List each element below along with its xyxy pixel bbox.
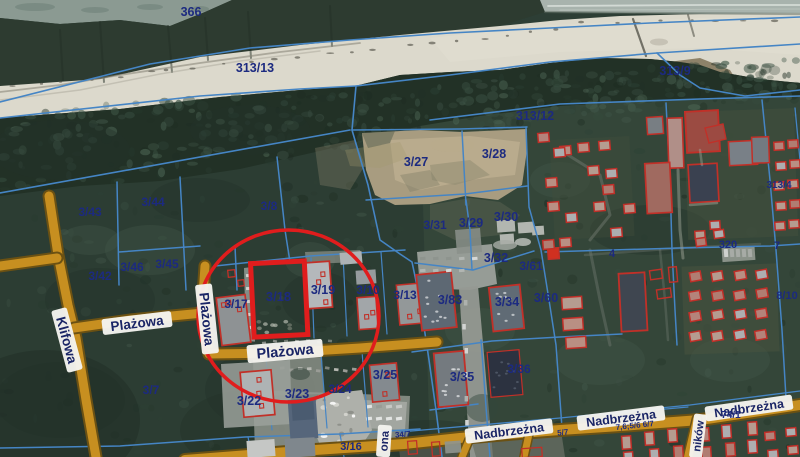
svg-text:3/22: 3/22 [237,394,261,408]
svg-text:3/43: 3/43 [78,205,102,219]
svg-text:3/25: 3/25 [373,368,397,382]
svg-text:313/9: 313/9 [659,64,690,78]
svg-text:3/46: 3/46 [120,260,144,274]
svg-text:3/35: 3/35 [450,370,474,384]
svg-text:3/24: 3/24 [328,382,352,396]
svg-text:313/12: 313/12 [516,109,554,123]
svg-text:313/13: 313/13 [236,61,274,75]
svg-text:3/44: 3/44 [141,195,165,209]
svg-text:3/13: 3/13 [393,288,417,302]
svg-text:3/29: 3/29 [459,216,483,230]
svg-text:320: 320 [719,239,737,251]
svg-text:5/7: 5/7 [557,427,570,437]
svg-text:3/45: 3/45 [155,257,179,271]
svg-text:3/23: 3/23 [285,387,309,401]
svg-text:3/83: 3/83 [438,293,462,307]
svg-text:3/28: 3/28 [482,147,506,161]
svg-text:7: 7 [774,240,780,252]
svg-text:3/34: 3/34 [495,295,519,309]
svg-text:3/42: 3/42 [88,269,112,283]
svg-text:313/4: 313/4 [766,180,791,191]
svg-text:3/36: 3/36 [507,362,531,376]
svg-text:3/32: 3/32 [484,251,508,265]
svg-text:3/19: 3/19 [311,283,335,297]
svg-text:3/31: 3/31 [423,218,447,232]
svg-text:34/7: 34/7 [395,429,412,439]
svg-text:3/30: 3/30 [494,210,518,224]
svg-text:4: 4 [609,248,616,260]
svg-text:74/1: 74/1 [721,410,741,421]
svg-text:ona: ona [378,430,391,452]
svg-text:3/17: 3/17 [224,297,248,311]
svg-text:3/61: 3/61 [519,259,543,273]
svg-text:3/18: 3/18 [266,289,291,304]
svg-text:3/10: 3/10 [356,283,380,297]
svg-text:3/27: 3/27 [404,155,428,169]
svg-text:3/16: 3/16 [340,441,361,453]
svg-text:3/60: 3/60 [534,291,558,305]
svg-text:3/7: 3/7 [143,383,160,397]
svg-text:366: 366 [181,5,202,19]
svg-text:3/8: 3/8 [261,199,278,213]
svg-text:8/10: 8/10 [776,290,797,302]
